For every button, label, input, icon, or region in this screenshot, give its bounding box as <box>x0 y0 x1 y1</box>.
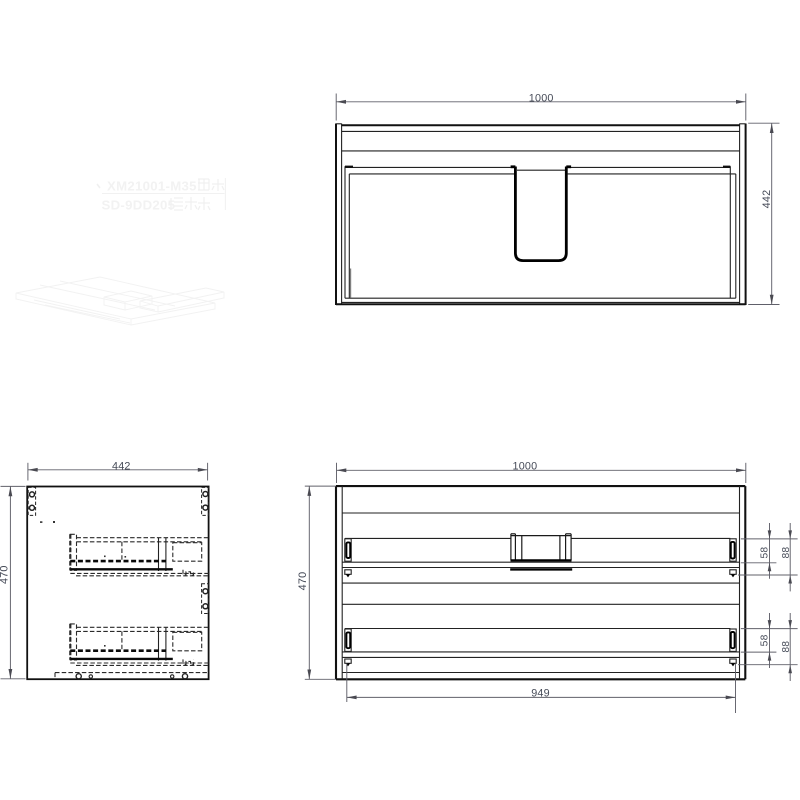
svg-text:XM21001-M35: XM21001-M35 <box>107 179 197 194</box>
svg-text:442: 442 <box>112 461 131 473</box>
svg-text:1000: 1000 <box>512 460 537 472</box>
svg-text:442: 442 <box>761 190 773 209</box>
svg-text:SD-9DD205: SD-9DD205 <box>102 198 176 213</box>
svg-text:58: 58 <box>760 634 771 646</box>
svg-text:1000: 1000 <box>529 92 554 104</box>
svg-text:58: 58 <box>760 547 771 559</box>
svg-text:88: 88 <box>781 547 792 559</box>
svg-text:470: 470 <box>297 572 309 591</box>
svg-text:88: 88 <box>781 641 792 653</box>
svg-text:949: 949 <box>531 688 550 700</box>
svg-text:470: 470 <box>0 565 10 584</box>
